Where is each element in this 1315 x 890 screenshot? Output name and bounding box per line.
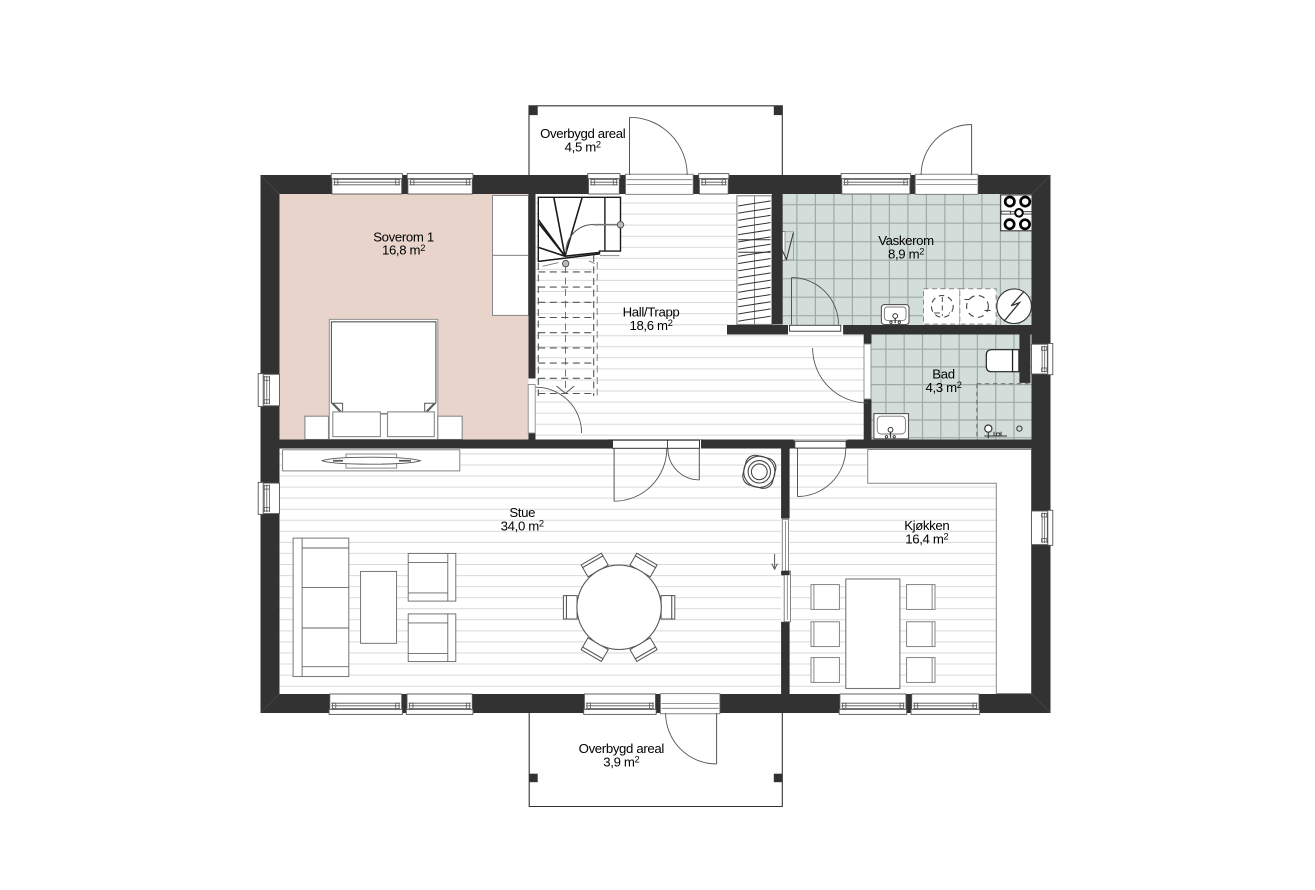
svg-text:4,5 m2: 4,5 m2	[565, 139, 601, 154]
svg-text:34,0 m2: 34,0 m2	[501, 518, 544, 533]
svg-text:8,9 m2: 8,9 m2	[888, 246, 924, 261]
svg-text:4,3 m2: 4,3 m2	[925, 380, 961, 395]
svg-text:16,8 m2: 16,8 m2	[382, 243, 425, 258]
svg-text:18,6 m2: 18,6 m2	[629, 318, 672, 333]
svg-text:3,9 m2: 3,9 m2	[603, 754, 639, 769]
svg-text:16,4 m2: 16,4 m2	[905, 531, 948, 546]
